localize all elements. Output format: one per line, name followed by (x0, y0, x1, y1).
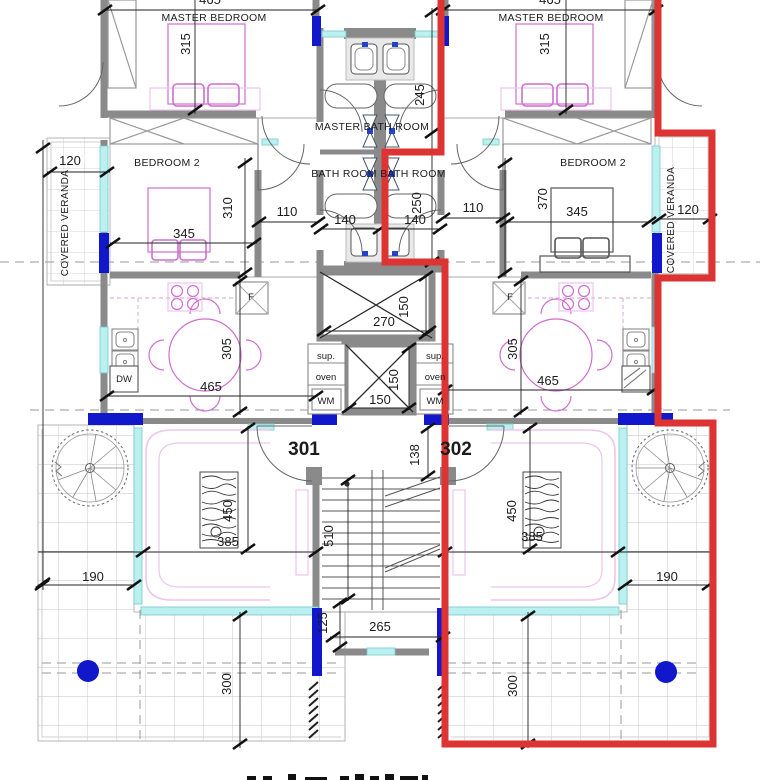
dim-110-right: 110 (463, 200, 484, 215)
dim-190-left: 190 (82, 569, 104, 584)
unit-302-label: 302 (440, 439, 472, 460)
dim-250: 250 (409, 192, 424, 214)
dim-465-top-left: 465 (199, 0, 221, 7)
fridge-label-right: F (507, 292, 513, 303)
dim-300-left: 300 (219, 673, 234, 695)
dim-265: 265 (369, 619, 391, 634)
oven-label-left: oven (316, 372, 337, 383)
dim-370: 370 (535, 188, 550, 210)
dim-345-right: 345 (566, 204, 588, 219)
veranda-column-left (77, 660, 99, 682)
dim-270: 270 (373, 314, 395, 329)
washing-machine-label-left: WM (318, 396, 335, 407)
dim-510: 510 (321, 525, 336, 547)
dim-305-left: 305 (219, 338, 234, 360)
dim-110-left: 110 (277, 204, 298, 219)
dim-385-right: 385 (521, 529, 543, 544)
dim-120-right: 120 (677, 202, 699, 217)
oven-label-right: oven (425, 372, 446, 383)
dim-385-left: 385 (217, 534, 239, 549)
dim-305-right: 305 (505, 338, 520, 360)
dim-345-left: 345 (173, 226, 195, 241)
dim-190-right: 190 (656, 569, 678, 584)
dim-450-left: 450 (220, 500, 235, 522)
staircase (322, 470, 440, 610)
cupboard-label-left: sup. (317, 351, 335, 362)
room-bathroom-left: BATH ROOM (311, 168, 377, 180)
floor-plan-canvas: 465 465 MASTER BEDROOM MASTER BEDROOM BE… (0, 0, 760, 780)
fridge-label-left: F (248, 292, 254, 303)
dim-315-right: 315 (537, 33, 552, 55)
floor-plan-drawing: 465 465 MASTER BEDROOM MASTER BEDROOM BE… (0, 0, 760, 780)
dim-465-mid-left: 465 (200, 379, 222, 394)
dim-120-left: 120 (59, 153, 81, 168)
spiral-stairs (52, 430, 708, 506)
dim-300-right: 300 (505, 675, 520, 697)
dim-315-left: 315 (178, 33, 193, 55)
dim-140-left: 140 (334, 212, 356, 227)
dim-150-lower-v: 150 (386, 369, 401, 391)
room-master-bedroom-right: MASTER BEDROOM (498, 12, 603, 24)
dim-138: 138 (407, 444, 422, 466)
veranda-column-right (655, 661, 677, 683)
dim-465-top-right: 465 (539, 0, 561, 7)
dim-245: 245 (412, 84, 427, 106)
unit-301-label: 301 (288, 439, 320, 460)
dim-465-mid-right: 465 (537, 373, 559, 388)
cupboard-label-right: sup. (426, 351, 444, 362)
room-master-bedroom-left: MASTER BEDROOM (161, 12, 266, 24)
room-bathroom-right: BATH ROOM (380, 168, 446, 180)
room-bedroom2-left: BEDROOM 2 (134, 157, 200, 169)
dim-140-right: 140 (404, 212, 426, 227)
cut-off-caption (247, 774, 428, 780)
dim-125: 125 (315, 612, 330, 634)
room-covered-veranda-right: COVERED VERANDA (666, 167, 677, 274)
dim-150-lower-h: 150 (369, 392, 391, 407)
dim-150-shaft-right: 150 (396, 296, 411, 318)
dishwasher-label: DW (116, 374, 132, 385)
washing-machine-label-right: WM (427, 396, 444, 407)
room-covered-veranda-left: COVERED VERANDA (60, 170, 71, 277)
room-master-bathroom: MASTER BATH ROOM (315, 121, 429, 133)
dim-450-right: 450 (504, 500, 519, 522)
room-bedroom2-right: BEDROOM 2 (560, 157, 626, 169)
dim-310: 310 (220, 197, 235, 219)
